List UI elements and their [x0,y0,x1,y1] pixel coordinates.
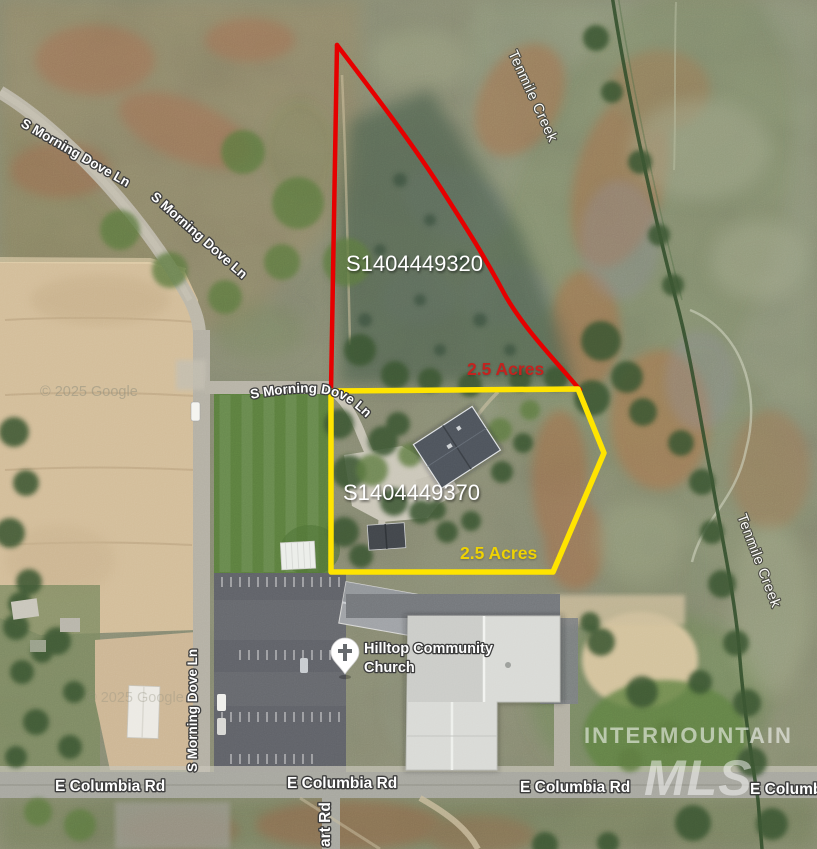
church-label-line2: Church [364,660,415,676]
road-label-columbia-1: E Columbia Rd [55,778,165,795]
parcel-id-S1404449370: S1404449370 [343,480,480,505]
road-label-morning-dove-4: S Morning Dove Ln [185,649,200,772]
road-label-columbia-4: E Columbia Rd [750,781,817,798]
mls-watermark: MLS [644,750,753,806]
google-watermark-1: © 2025 Google [40,384,138,400]
road-label-art-rd: art Rd [317,802,334,847]
road-label-columbia-2: E Columbia Rd [287,775,397,792]
satellite-map-image: S Morning Dove Ln S Morning Dove Ln S Mo… [0,0,817,849]
parcel-id-S1404449320: S1404449320 [346,251,483,276]
road-label-columbia-3: E Columbia Rd [520,779,630,796]
intermountain-watermark: INTERMOUNTAIN [584,723,793,748]
church-label-line1: Hilltop Community [364,641,493,657]
google-watermark-2: © 2025 Google [86,690,184,706]
acres-label-yellow: 2.5 Acres [460,543,537,563]
acres-label-red: 2.5 Acres [467,359,544,379]
satellite-terrain [0,0,817,849]
